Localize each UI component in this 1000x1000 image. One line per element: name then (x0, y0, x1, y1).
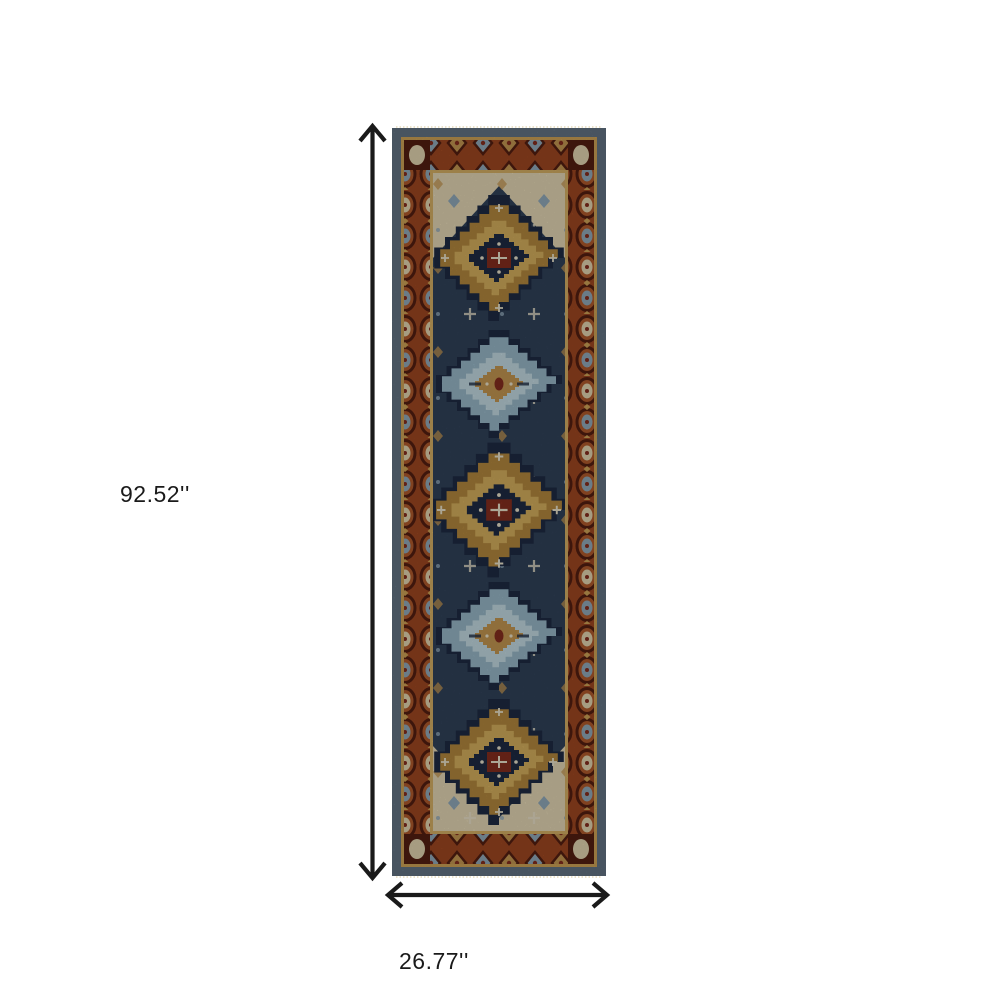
height-dimension-label: 92.52'' (120, 483, 190, 506)
rug-image (392, 126, 606, 878)
width-arrow (388, 883, 607, 907)
rug-texture-overlay (392, 128, 606, 876)
height-arrow (360, 126, 385, 878)
width-arrow-head-right (593, 883, 607, 907)
product-dimension-image: 92.52'' 26.77'' (0, 0, 1000, 1000)
width-arrow-head-left (388, 883, 402, 907)
height-arrow-head-top (360, 126, 385, 141)
rug-body (392, 128, 606, 876)
width-dimension-label: 26.77'' (399, 950, 469, 973)
height-arrow-head-bottom (360, 863, 385, 878)
